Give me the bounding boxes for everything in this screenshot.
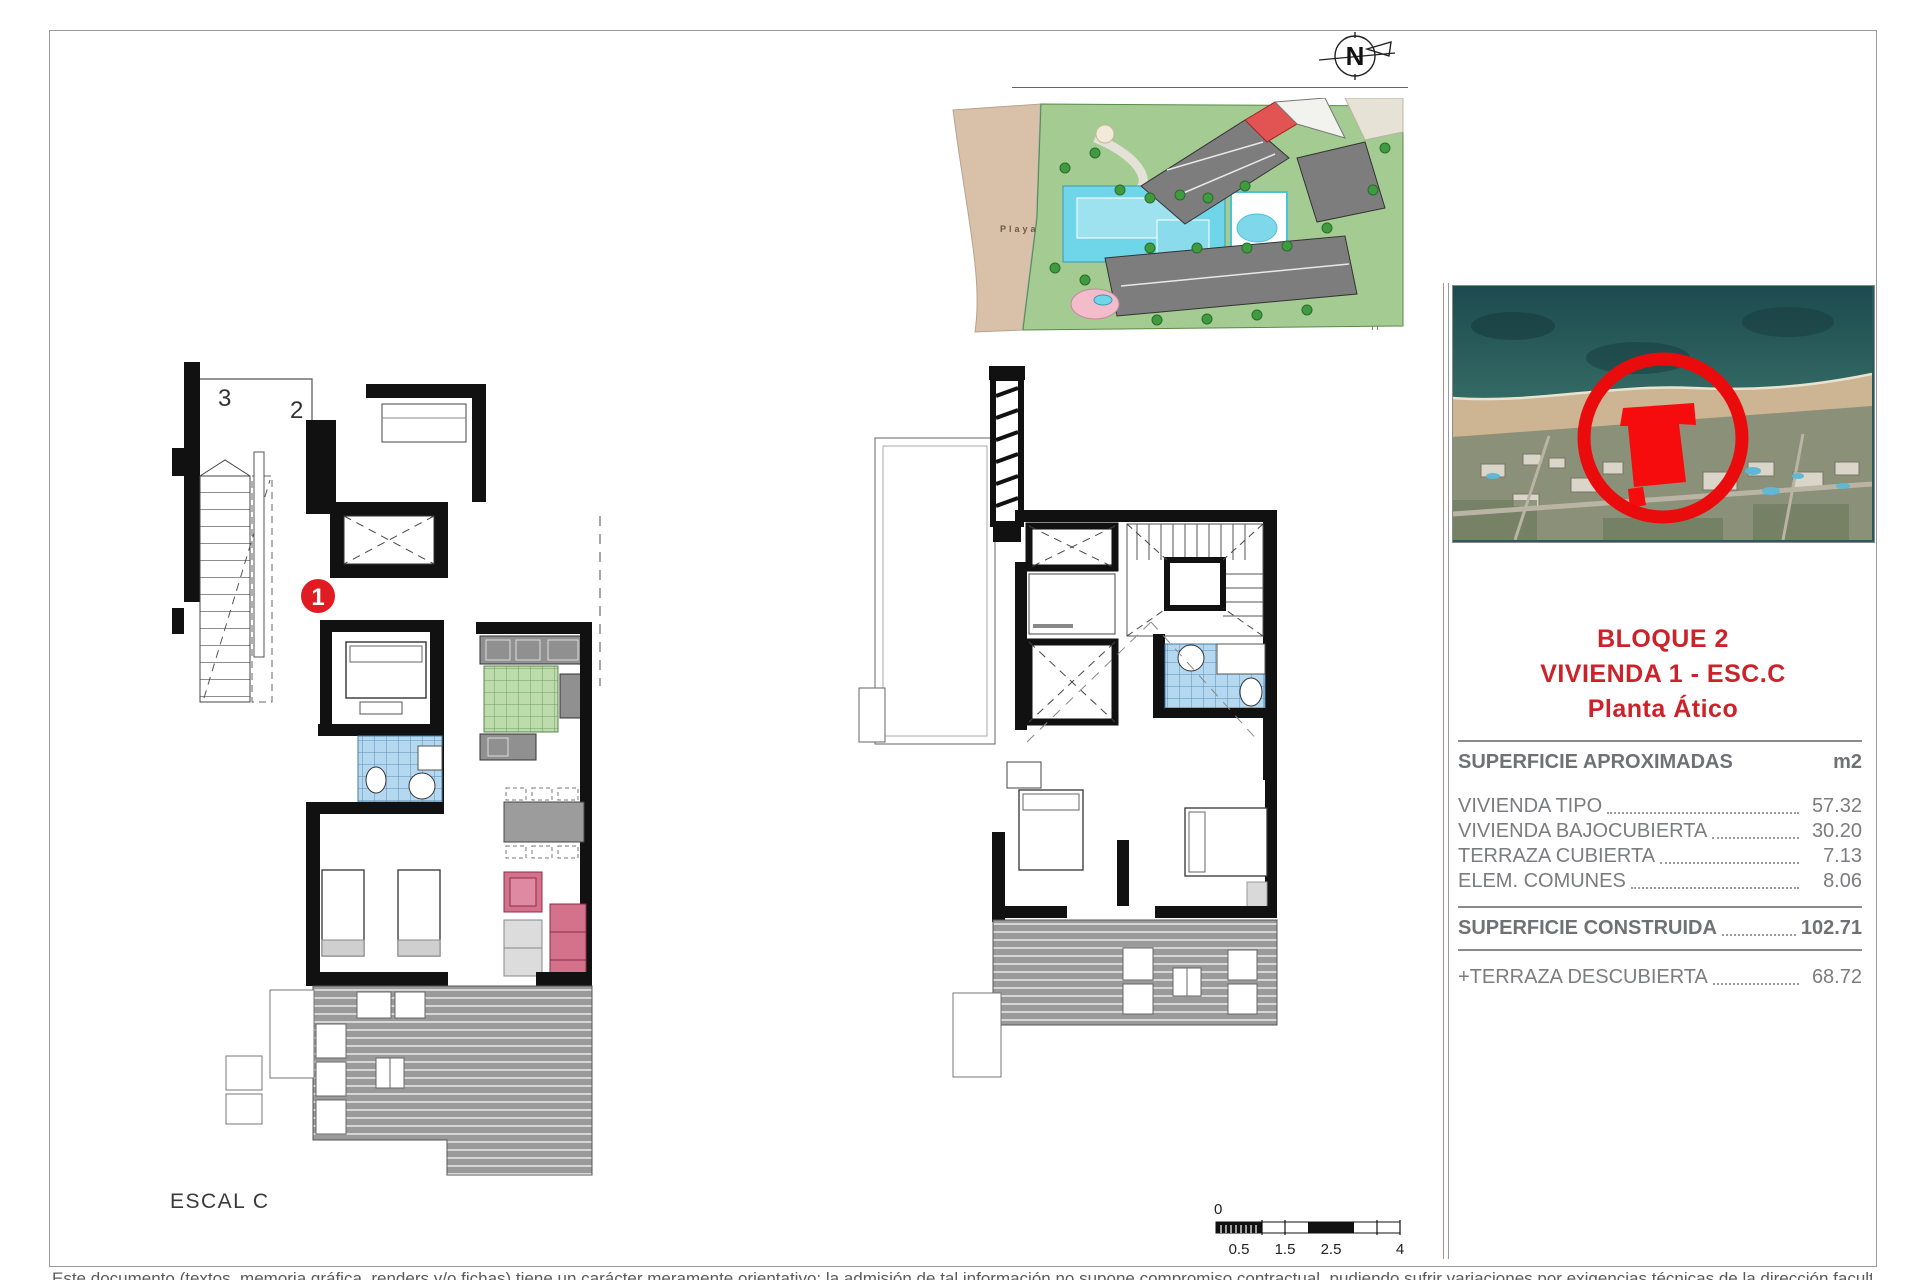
site-plan: Playa xyxy=(945,98,1415,336)
pillow xyxy=(1189,812,1205,872)
lagoon-pool xyxy=(1237,214,1277,242)
planter xyxy=(270,990,314,1078)
unit-label-2: 2 xyxy=(290,397,303,424)
aerial-photo xyxy=(1452,285,1875,543)
elevator-shaft xyxy=(330,502,448,578)
title-block: BLOQUE 2 VIVIENDA 1 - ESC.C Planta Ático xyxy=(1452,622,1874,727)
bedroom-attic-2 xyxy=(1185,808,1267,908)
wall xyxy=(992,832,1005,922)
plan-sheet: N Playa xyxy=(0,0,1920,1280)
dot-leader xyxy=(1722,934,1796,936)
bedroom-1 xyxy=(346,642,426,714)
dining-area xyxy=(504,788,584,858)
side-table xyxy=(360,702,402,714)
stairs xyxy=(1127,524,1263,636)
lounger xyxy=(1123,984,1153,1014)
vanity xyxy=(1217,644,1265,674)
bedroom-2 xyxy=(322,870,440,956)
row-value: 30.20 xyxy=(1804,819,1862,844)
toilet-icon xyxy=(1240,678,1262,706)
lounger xyxy=(316,1024,346,1058)
extra-label: +TERRAZA DESCUBIERTA xyxy=(1458,965,1708,990)
floor-plan-main: 3 2 1 xyxy=(170,356,632,1198)
planter xyxy=(226,1056,262,1090)
table-row: VIVIENDA TIPO 57.32 xyxy=(1458,794,1862,819)
chair xyxy=(506,846,526,858)
unit-badge: 1 xyxy=(301,579,335,613)
title-planta: Planta Ático xyxy=(1452,692,1874,727)
scale-bar: 0 0.5 1.5 2.5 4 xyxy=(1208,1198,1418,1260)
site-plan-topline xyxy=(1012,87,1408,88)
sink-icon xyxy=(409,773,435,799)
wall xyxy=(320,620,332,734)
handrail xyxy=(254,452,264,657)
planter xyxy=(953,993,1001,1077)
bathroom xyxy=(358,736,442,802)
stairs xyxy=(200,452,272,702)
wall xyxy=(172,608,184,634)
chair xyxy=(558,788,578,800)
dining-table xyxy=(504,802,584,842)
areas-rows: VIVIENDA TIPO 57.32 VIVIENDA BAJOCUBIERT… xyxy=(1458,794,1862,894)
total-value: 102.71 xyxy=(1801,916,1862,941)
sill xyxy=(1033,624,1073,628)
planter xyxy=(226,1094,262,1124)
scale-tick: 4 xyxy=(1396,1241,1404,1258)
wall xyxy=(1015,510,1269,522)
wall xyxy=(172,448,184,476)
row-value: 57.32 xyxy=(1804,794,1862,819)
wall xyxy=(306,802,320,984)
pillow xyxy=(350,646,422,662)
floor-plan-upper xyxy=(855,362,1325,1134)
terrace xyxy=(313,986,592,1175)
closet xyxy=(1007,762,1041,788)
plan-caption: ESCAL C xyxy=(170,1190,270,1214)
playa-label: Playa xyxy=(1000,224,1039,234)
kids-pool-area xyxy=(1071,289,1119,319)
lounger xyxy=(316,1062,346,1096)
row-value: 8.06 xyxy=(1804,869,1862,894)
title-bloque: BLOQUE 2 xyxy=(1452,622,1874,657)
wall xyxy=(1117,840,1129,906)
wall xyxy=(1015,562,1027,730)
bedroom-attic-1 xyxy=(1019,790,1083,870)
living-area xyxy=(504,872,586,988)
terrace-outline-inner xyxy=(883,446,987,736)
skylight-box xyxy=(1029,526,1115,568)
wall xyxy=(320,620,430,632)
chair xyxy=(506,788,526,800)
lounger xyxy=(1228,984,1257,1014)
kitchen-floor xyxy=(484,666,558,732)
areas-table: SUPERFICIE APROXIMADAS m2 VIVIENDA TIPO … xyxy=(1458,740,1862,990)
row-label: VIVIENDA BAJOCUBIERTA xyxy=(1458,819,1707,844)
dot-leader xyxy=(1713,983,1799,985)
shower-tray xyxy=(418,746,442,770)
lounger xyxy=(1123,948,1153,980)
table-extra-row: +TERRAZA DESCUBIERTA 68.72 xyxy=(1458,965,1862,990)
scale-tick: 1.5 xyxy=(1275,1241,1296,1258)
lounger xyxy=(395,992,425,1018)
closet xyxy=(382,404,466,442)
wall xyxy=(1153,634,1165,718)
dot-leader xyxy=(1631,887,1799,889)
wall xyxy=(536,972,592,986)
wall xyxy=(472,384,486,502)
scale-tick: 2.5 xyxy=(1321,1241,1342,1258)
scale-tick: 0.5 xyxy=(1229,1241,1250,1258)
areas-header: SUPERFICIE APROXIMADAS m2 xyxy=(1458,740,1862,774)
skylight-box xyxy=(1029,642,1115,722)
wall xyxy=(1005,906,1067,918)
wall xyxy=(318,802,444,814)
row-label: TERRAZA CUBIERTA xyxy=(1458,844,1655,869)
terrace xyxy=(993,920,1277,1025)
lounger xyxy=(357,992,391,1018)
panel-divider xyxy=(1443,283,1449,1259)
title-vivienda: VIVIENDA 1 - ESC.C xyxy=(1452,657,1874,692)
plaza xyxy=(1096,125,1114,143)
areas-unit: m2 xyxy=(1833,751,1862,774)
side-unit xyxy=(1247,882,1267,908)
wall xyxy=(476,622,592,634)
wall xyxy=(306,420,336,514)
chair xyxy=(532,846,552,858)
pillow xyxy=(1023,794,1079,810)
extra-value: 68.72 xyxy=(1804,965,1862,990)
dot-leader xyxy=(1712,837,1799,839)
terrace-outline xyxy=(875,438,995,744)
dot-leader xyxy=(1607,812,1799,814)
chair xyxy=(532,788,552,800)
row-label: VIVIENDA TIPO xyxy=(1458,794,1602,819)
toilet-icon xyxy=(366,767,386,793)
row-value: 7.13 xyxy=(1804,844,1862,869)
dot-leader xyxy=(1660,862,1799,864)
north-compass-icon: N xyxy=(1315,22,1399,90)
table-row: TERRAZA CUBIERTA 7.13 xyxy=(1458,844,1862,869)
north-label: N xyxy=(1346,41,1365,71)
planter xyxy=(859,688,885,742)
wall xyxy=(1165,708,1277,718)
table-total-row: SUPERFICIE CONSTRUIDA 102.71 xyxy=(1458,906,1862,951)
lounger xyxy=(316,1100,346,1134)
footer-disclaimer: Este documento (textos, memoria gráfica,… xyxy=(52,1269,1872,1280)
table-row: ELEM. COMUNES 8.06 xyxy=(1458,869,1862,894)
unit-label-3: 3 xyxy=(218,385,231,412)
unit-label-1: 1 xyxy=(311,584,324,611)
chair xyxy=(558,846,578,858)
wall xyxy=(1155,906,1277,918)
bed-foot xyxy=(398,940,440,956)
bed-foot xyxy=(322,940,364,956)
kitchen xyxy=(480,636,586,760)
scale-zero: 0 xyxy=(1214,1201,1222,1218)
wall xyxy=(306,972,448,986)
row-label: ELEM. COMUNES xyxy=(1458,869,1626,894)
wall xyxy=(318,724,444,736)
wall xyxy=(366,384,486,398)
total-label: SUPERFICIE CONSTRUIDA xyxy=(1458,916,1717,941)
wall xyxy=(184,362,200,602)
lounger xyxy=(1228,950,1257,980)
table-row: VIVIENDA BAJOCUBIERTA 30.20 xyxy=(1458,819,1862,844)
kids-pool xyxy=(1094,295,1112,305)
areas-header-label: SUPERFICIE APROXIMADAS xyxy=(1458,751,1733,774)
